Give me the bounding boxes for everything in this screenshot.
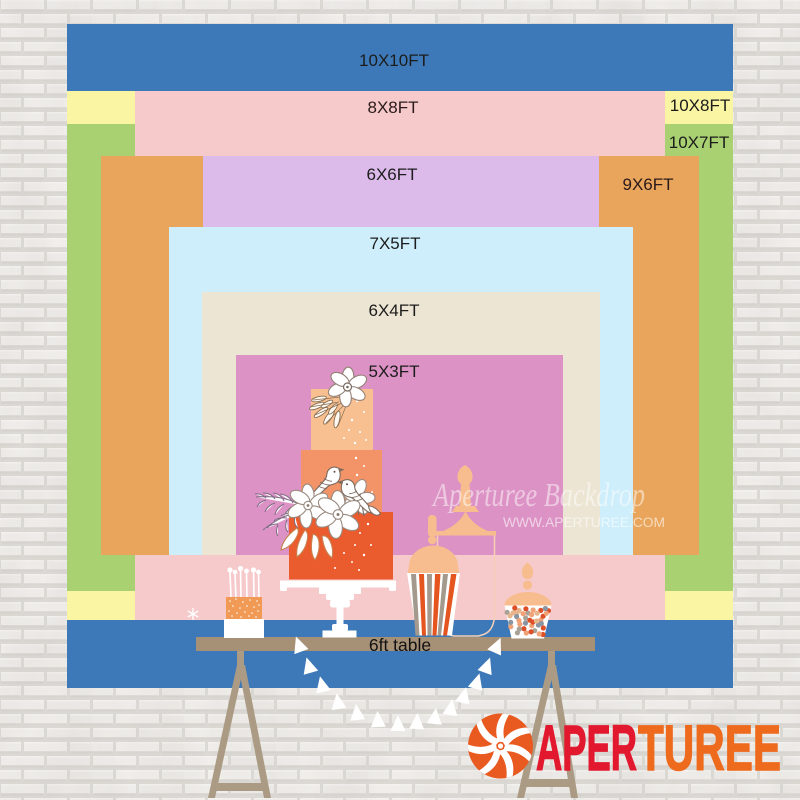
svg-text:10X10FT: 10X10FT <box>359 51 429 70</box>
svg-text:TUREE: TUREE <box>638 712 781 784</box>
svg-text:5X3FT: 5X3FT <box>368 362 419 381</box>
svg-text:6X6FT: 6X6FT <box>366 165 417 184</box>
svg-text:10X7FT: 10X7FT <box>669 133 729 152</box>
svg-text:WWW.APERTUREE.COM: WWW.APERTUREE.COM <box>503 515 665 530</box>
svg-text:8X8FT: 8X8FT <box>367 98 418 117</box>
svg-text:6ft table: 6ft table <box>369 635 431 655</box>
svg-text:6X4FT: 6X4FT <box>368 301 419 320</box>
svg-text:9X6FT: 9X6FT <box>622 175 673 194</box>
svg-text:7X5FT: 7X5FT <box>369 234 420 253</box>
svg-text:10X8FT: 10X8FT <box>670 96 730 115</box>
svg-text:Aperturee Backdrop: Aperturee Backdrop <box>431 477 645 514</box>
svg-text:APER: APER <box>536 712 637 784</box>
